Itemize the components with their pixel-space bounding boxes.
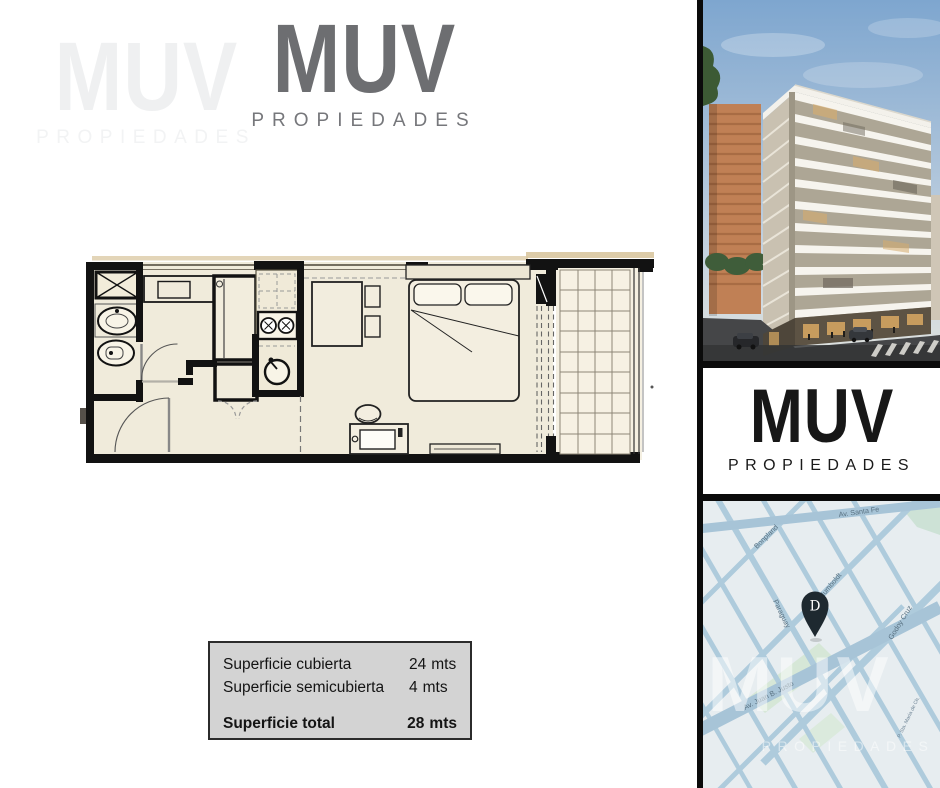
balcony-tiles: [560, 270, 630, 454]
watermark-title: MUV: [54, 28, 238, 125]
surface-row: Superficie cubierta 24mts: [223, 653, 457, 676]
surface-total-value: 28: [407, 715, 424, 732]
left-wall: [86, 262, 94, 462]
building-photo: [703, 0, 940, 363]
brand-watermark: MUV PROPIEDADES: [24, 28, 268, 149]
brand-logo: MUV PROPIEDADES: [246, 10, 482, 132]
divider-bar-horizontal: [697, 361, 940, 368]
brand-tagline: PROPIEDADES: [703, 457, 940, 475]
surface-total-unit: mts: [429, 715, 457, 732]
background-building: [931, 195, 940, 320]
map-watermark-title: MUV: [707, 640, 892, 728]
surface-value: 4: [409, 679, 418, 696]
dimension-tick: [80, 408, 86, 424]
bottom-wall: [86, 454, 556, 463]
surface-info-box: Superficie cubierta 24mts Superficie sem…: [208, 641, 472, 740]
shower: [96, 272, 138, 298]
location-map: Av. Santa Fe Bonpland Paraguay Humboldt …: [703, 501, 940, 788]
low-cabinet: [430, 444, 500, 454]
brand-logo-panel: MUV PROPIEDADES: [703, 368, 940, 494]
map-watermark-tagline: PROPIEDADES: [762, 738, 935, 754]
divider-bar-horizontal: [697, 494, 940, 501]
toilet: [98, 341, 134, 366]
bed: [406, 265, 530, 401]
pin-letter: D: [810, 599, 821, 615]
top-accent: [92, 256, 528, 261]
surface-label: Superficie cubierta: [223, 653, 409, 676]
surface-unit: mts: [431, 656, 456, 673]
real-estate-flyer: MUV PROPIEDADES MUV PROPIEDADES: [0, 0, 940, 788]
surface-total-label: Superficie total: [223, 712, 407, 735]
surface-total-row: Superficie total 28mts: [223, 712, 457, 735]
wardrobe: [144, 276, 214, 302]
stove-burners: [258, 312, 297, 339]
surface-unit: mts: [423, 679, 448, 696]
balcony-accent: [526, 252, 654, 258]
surface-row: Superficie semicubierta 4mts: [223, 676, 457, 699]
orange-tower: [709, 104, 761, 316]
plan-dot: [651, 386, 654, 389]
surface-value: 24: [409, 656, 426, 673]
brand-tagline: PROPIEDADES: [246, 110, 482, 132]
brand-title: MUV: [749, 379, 893, 455]
tall-closet: [214, 276, 256, 360]
brand-title: MUV: [272, 10, 456, 107]
floor-plan: [78, 248, 663, 473]
surface-label: Superficie semicubierta: [223, 676, 409, 699]
main-building: [763, 85, 931, 348]
